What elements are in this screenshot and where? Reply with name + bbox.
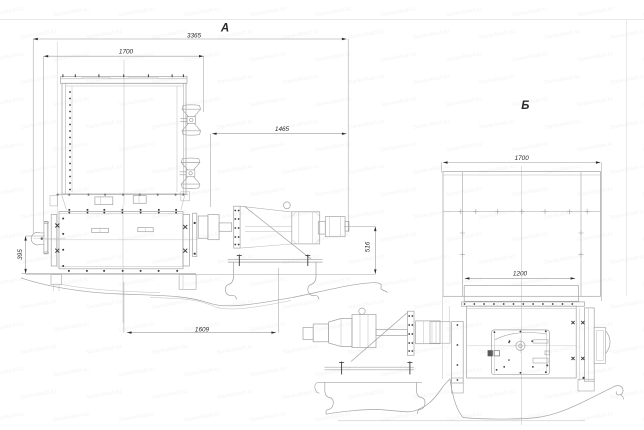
svg-text:1465: 1465 (275, 126, 290, 133)
svg-text:1609: 1609 (195, 327, 210, 334)
svg-text:Б: Б (521, 100, 529, 112)
svg-text:А: А (220, 23, 229, 35)
svg-text:516: 516 (364, 241, 371, 252)
svg-text:1700: 1700 (515, 155, 530, 162)
svg-text:1700: 1700 (119, 49, 134, 56)
svg-text:3365: 3365 (187, 32, 202, 39)
svg-text:395: 395 (17, 249, 24, 260)
svg-text:1200: 1200 (513, 271, 528, 278)
